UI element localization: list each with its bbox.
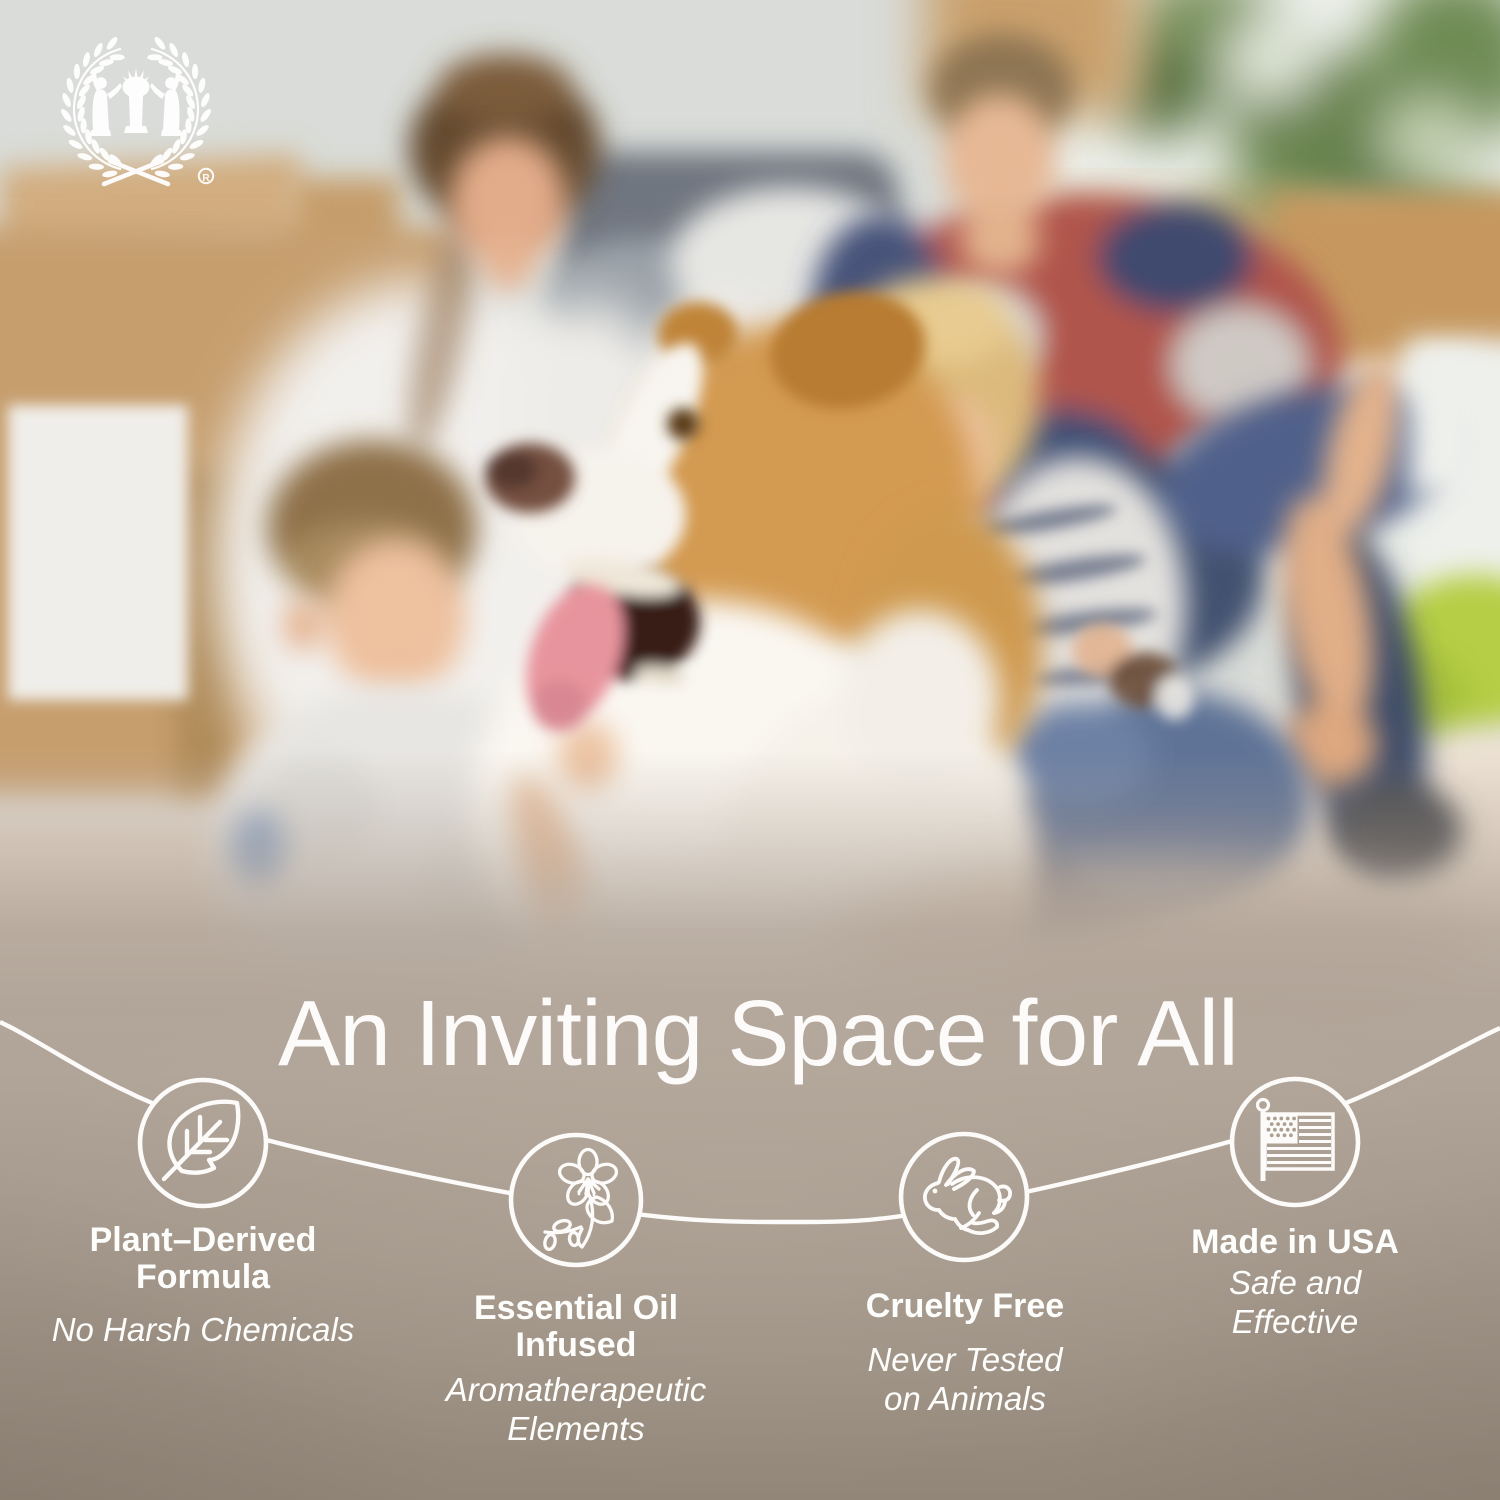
svg-text:R: R: [202, 173, 210, 184]
